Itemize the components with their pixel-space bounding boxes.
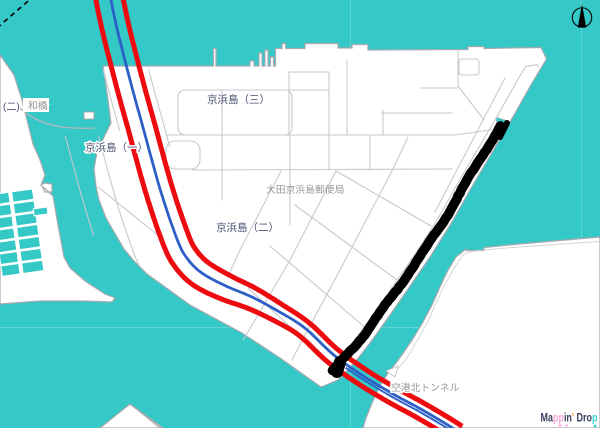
svg-text:京浜島（二）: 京浜島（二） [216, 221, 279, 234]
svg-text:Mappin' Drop: Mappin' Drop [541, 413, 598, 425]
svg-text:大田京浜島郵便局: 大田京浜島郵便局 [266, 183, 344, 196]
svg-text:京浜島（一）: 京浜島（一） [85, 141, 148, 154]
svg-text:空港北トンネル: 空港北トンネル [391, 381, 460, 394]
svg-text:(二): (二) [3, 102, 20, 113]
svg-text:和橋: 和橋 [28, 99, 48, 112]
svg-text:京浜島（三）: 京浜島（三） [207, 93, 270, 106]
